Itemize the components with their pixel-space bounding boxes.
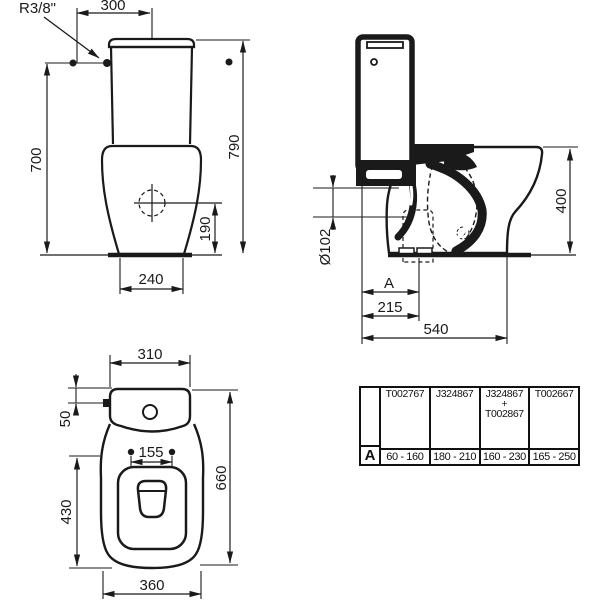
drawing-canvas: R3/8" 300 700 790 190 240 — [0, 0, 600, 600]
supply-leader-line — [44, 17, 99, 58]
accessory-4-cell: T002667 — [530, 388, 578, 450]
top-inner-bowl — [138, 481, 166, 517]
supply-dot-tank — [103, 59, 111, 67]
top-inlet-nub — [103, 399, 111, 407]
technical-drawing-page: R3/8" 300 700 790 190 240 — [0, 0, 600, 600]
accessory-3-cell: J324867 + T002867 — [481, 388, 529, 450]
dim-190-label: 190 — [197, 216, 214, 241]
dim-430-label: 430 — [58, 499, 75, 524]
accessory-1-code: T002767 — [381, 389, 429, 399]
supply-dot-right — [226, 59, 233, 66]
supply-thread-label: R3/8" — [19, 0, 56, 17]
dim-240-label: 240 — [138, 271, 163, 288]
front-view-drawing: R3/8" 300 700 790 190 240 — [19, 0, 250, 294]
accessory-2-cell: J324867 — [431, 388, 479, 450]
accessory-3-range: 160 - 230 — [481, 450, 529, 464]
accessory-column-1: T002767 60 - 160 — [381, 388, 431, 464]
side-view-drawing: Ø102 400 A 215 540 — [313, 37, 578, 344]
accessories-table-row-header-column: A — [361, 388, 381, 464]
top-view-drawing: 310 50 155 430 660 360 — [57, 346, 238, 599]
top-cistern-outline — [110, 389, 190, 432]
accessory-column-4: T002667 165 - 250 — [530, 388, 578, 464]
dim-A-label: A — [384, 275, 394, 292]
side-cistern-section — [356, 37, 416, 186]
accessory-4-code: T002667 — [530, 389, 578, 399]
accessory-column-3: J324867 + T002867 160 - 230 — [481, 388, 531, 464]
table-row-label: A — [361, 447, 379, 464]
dim-400-label: 400 — [553, 188, 570, 213]
accessory-4-range: 165 - 250 — [530, 450, 578, 464]
dim-790-label: 790 — [226, 134, 243, 159]
accessory-1-cell: T002767 — [381, 388, 429, 450]
seat-hinge-hole-left — [128, 449, 134, 455]
accessory-3-code2: T002867 — [481, 409, 529, 419]
dim-540-label: 540 — [423, 321, 448, 338]
accessory-1-range: 60 - 160 — [381, 450, 429, 464]
supply-dot-left — [70, 60, 77, 67]
dim-660-label: 660 — [213, 465, 230, 490]
accessory-column-2: J324867 180 - 210 — [431, 388, 481, 464]
dim-155-label: 155 — [138, 444, 163, 461]
accessory-2-range: 180 - 210 — [431, 450, 479, 464]
dim-215-label: 215 — [377, 299, 402, 316]
dim-outlet-diameter-label: Ø102 — [317, 229, 334, 266]
dim-700-label: 700 — [28, 147, 45, 172]
dim-310-label: 310 — [137, 346, 162, 363]
table-corner-cell — [361, 388, 379, 447]
dim-360-label: 360 — [139, 577, 164, 594]
accessory-2-code: J324867 — [431, 389, 479, 399]
accessories-table: A T002767 60 - 160 J324867 — [359, 386, 580, 466]
seat-hinge-hole-right — [169, 449, 175, 455]
dim-300-label: 300 — [100, 0, 125, 14]
dim-50-label: 50 — [57, 411, 74, 428]
